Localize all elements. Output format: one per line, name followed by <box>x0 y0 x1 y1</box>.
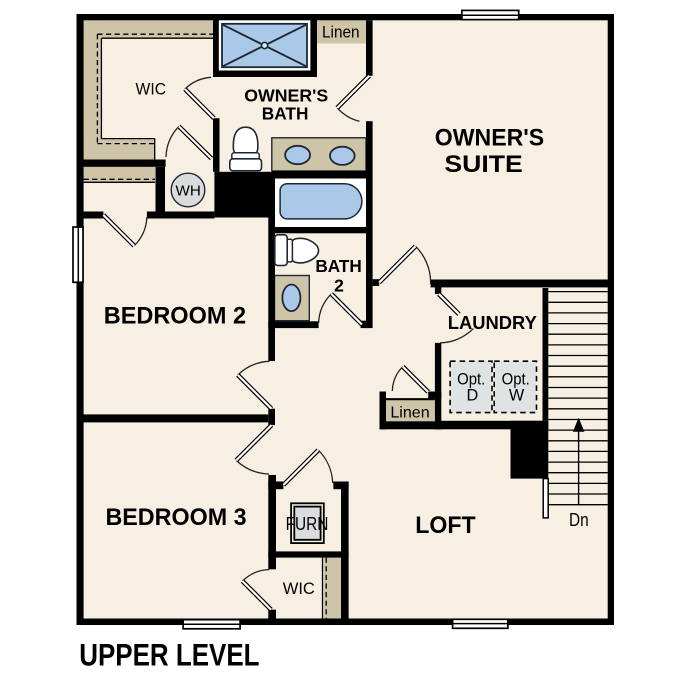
svg-text:BEDROOM 2: BEDROOM 2 <box>104 303 246 330</box>
svg-text:OWNER'S: OWNER'S <box>435 125 544 152</box>
svg-text:SUITE: SUITE <box>444 151 522 178</box>
svg-text:LOFT: LOFT <box>415 512 476 539</box>
svg-text:BATH: BATH <box>315 256 361 276</box>
svg-text:Linen: Linen <box>390 405 429 422</box>
svg-text:WIC: WIC <box>283 579 315 598</box>
svg-text:WIC: WIC <box>136 80 167 99</box>
svg-text:UPPER LEVEL: UPPER LEVEL <box>79 638 259 673</box>
svg-text:2: 2 <box>334 276 344 296</box>
svg-text:LAUNDRY: LAUNDRY <box>448 313 537 333</box>
svg-text:Dn: Dn <box>569 510 589 530</box>
svg-text:OWNER'S: OWNER'S <box>244 85 328 105</box>
svg-text:BATH: BATH <box>262 104 309 124</box>
svg-text:FURN: FURN <box>286 514 329 534</box>
svg-text:W: W <box>509 386 525 404</box>
svg-text:WH: WH <box>176 183 201 200</box>
svg-text:BEDROOM 3: BEDROOM 3 <box>105 504 246 531</box>
svg-text:Linen: Linen <box>322 22 360 41</box>
svg-text:D: D <box>467 386 479 404</box>
